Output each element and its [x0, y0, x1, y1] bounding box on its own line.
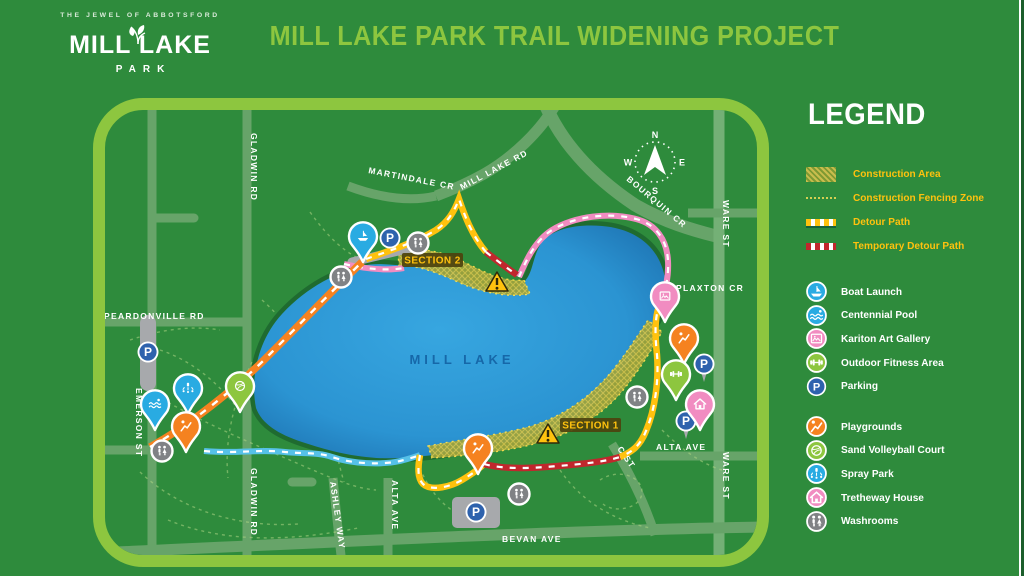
- road-label-bevan-ave: BEVAN AVE: [502, 534, 562, 544]
- pin-playgrounds-east: [670, 324, 698, 364]
- legend-item-parking: P Parking: [806, 374, 1022, 398]
- playground-icon: [806, 416, 827, 437]
- temporary-detour-swatch: [806, 243, 836, 250]
- road-label-plaxton-cr: PLAXTON CR: [676, 283, 744, 293]
- pin-playgrounds-west: [172, 412, 200, 452]
- svg-text:P: P: [682, 414, 690, 428]
- svg-text:SECTION 2: SECTION 2: [404, 256, 460, 267]
- legend-item-spray-park: Spray Park: [806, 462, 1022, 486]
- boat-icon: [806, 281, 827, 302]
- svg-text:W: W: [624, 158, 633, 168]
- road-label-alta-ave-south: ALTA AVE: [390, 480, 400, 530]
- mill-lake-map-page: MILL LAKE: [0, 0, 1024, 576]
- section-1-badge: SECTION 1: [560, 418, 621, 432]
- svg-text:P: P: [472, 505, 480, 519]
- legend-item-boat-launch: Boat Launch: [806, 280, 1022, 304]
- svg-text:P: P: [813, 381, 820, 393]
- road-label-gladwin-rd: GLADWIN RD: [249, 133, 259, 201]
- construction-area-swatch: [806, 167, 836, 182]
- legend-item-construction-area: Construction Area: [806, 162, 1022, 186]
- legend-item-sand-volleyball: Sand Volleyball Court: [806, 439, 1022, 463]
- mill-lake-park-logo: THE JEWEL OF ABBOTSFORD MILL LAKE PARK: [60, 8, 220, 75]
- svg-text:P: P: [386, 231, 394, 245]
- legend-item-kariton-art-gallery: Kariton Art Gallery: [806, 327, 1022, 351]
- fitness-icon: [806, 352, 827, 373]
- legend-panel: LEGEND Construction Area Construction Fe…: [806, 98, 1022, 533]
- legend-item-outdoor-fitness: Outdoor Fitness Area: [806, 351, 1022, 375]
- legend-item-detour-path: Detour Path: [806, 210, 1022, 234]
- svg-text:SECTION 1: SECTION 1: [562, 421, 618, 432]
- parking-icon: P: [806, 376, 827, 397]
- legend-title: LEGEND: [808, 98, 1005, 132]
- svg-text:P: P: [144, 345, 152, 359]
- legend-item-centennial-pool: Centennial Pool: [806, 304, 1022, 328]
- svg-text:E: E: [679, 158, 685, 168]
- washroom-icon: [806, 511, 827, 532]
- house-icon: [806, 487, 827, 508]
- legend-item-washrooms: Washrooms: [806, 509, 1022, 533]
- leaf-icon: [124, 24, 152, 44]
- pin-outdoor-fitness: [662, 360, 690, 400]
- road-label-gladwin-rd-south: GLADWIN RD: [249, 468, 259, 536]
- road-label-martindale-cr: MARTINDALE CR: [368, 165, 456, 192]
- page-title: MILL LAKE PARK TRAIL WIDENING PROJECT: [238, 20, 812, 52]
- legend-item-construction-fencing: Construction Fencing Zone: [806, 186, 1022, 210]
- logo-tagline: THE JEWEL OF ABBOTSFORD: [60, 12, 220, 19]
- section-2-badge: SECTION 2: [402, 253, 463, 267]
- volleyball-icon: [806, 440, 827, 461]
- legend-spacer: [806, 398, 1022, 415]
- legend-item-tretheway-house: Tretheway House: [806, 486, 1022, 510]
- road-label-ware-st-north: WARE ST: [721, 200, 731, 248]
- road-label-peardonville-rd: PEARDONVILLE RD: [104, 311, 205, 321]
- svg-text:N: N: [652, 130, 659, 140]
- svg-text:P: P: [700, 357, 708, 371]
- logo-subtitle: PARK: [60, 64, 220, 75]
- road-label-mill-lake-rd: MILL LAKE RD: [458, 148, 529, 192]
- road-label-ware-st-south: WARE ST: [721, 452, 731, 500]
- construction-fencing-swatch: [806, 197, 836, 199]
- pin-centennial-pool: [141, 390, 169, 430]
- road-label-alta-ave-east: ALTA AVE: [656, 442, 706, 452]
- svg-text:S: S: [652, 186, 658, 196]
- pool-icon: [806, 305, 827, 326]
- map-interior: MILL LAKE: [97, 104, 768, 572]
- legend-item-playgrounds: Playgrounds: [806, 415, 1022, 439]
- detour-path-swatch: [806, 219, 836, 226]
- legend-item-temporary-detour: Temporary Detour Path: [806, 234, 1022, 258]
- lake-label: MILL LAKE: [409, 352, 514, 367]
- art-gallery-icon: [806, 328, 827, 349]
- pin-spray-park: [174, 374, 202, 414]
- spray-park-icon: [806, 463, 827, 484]
